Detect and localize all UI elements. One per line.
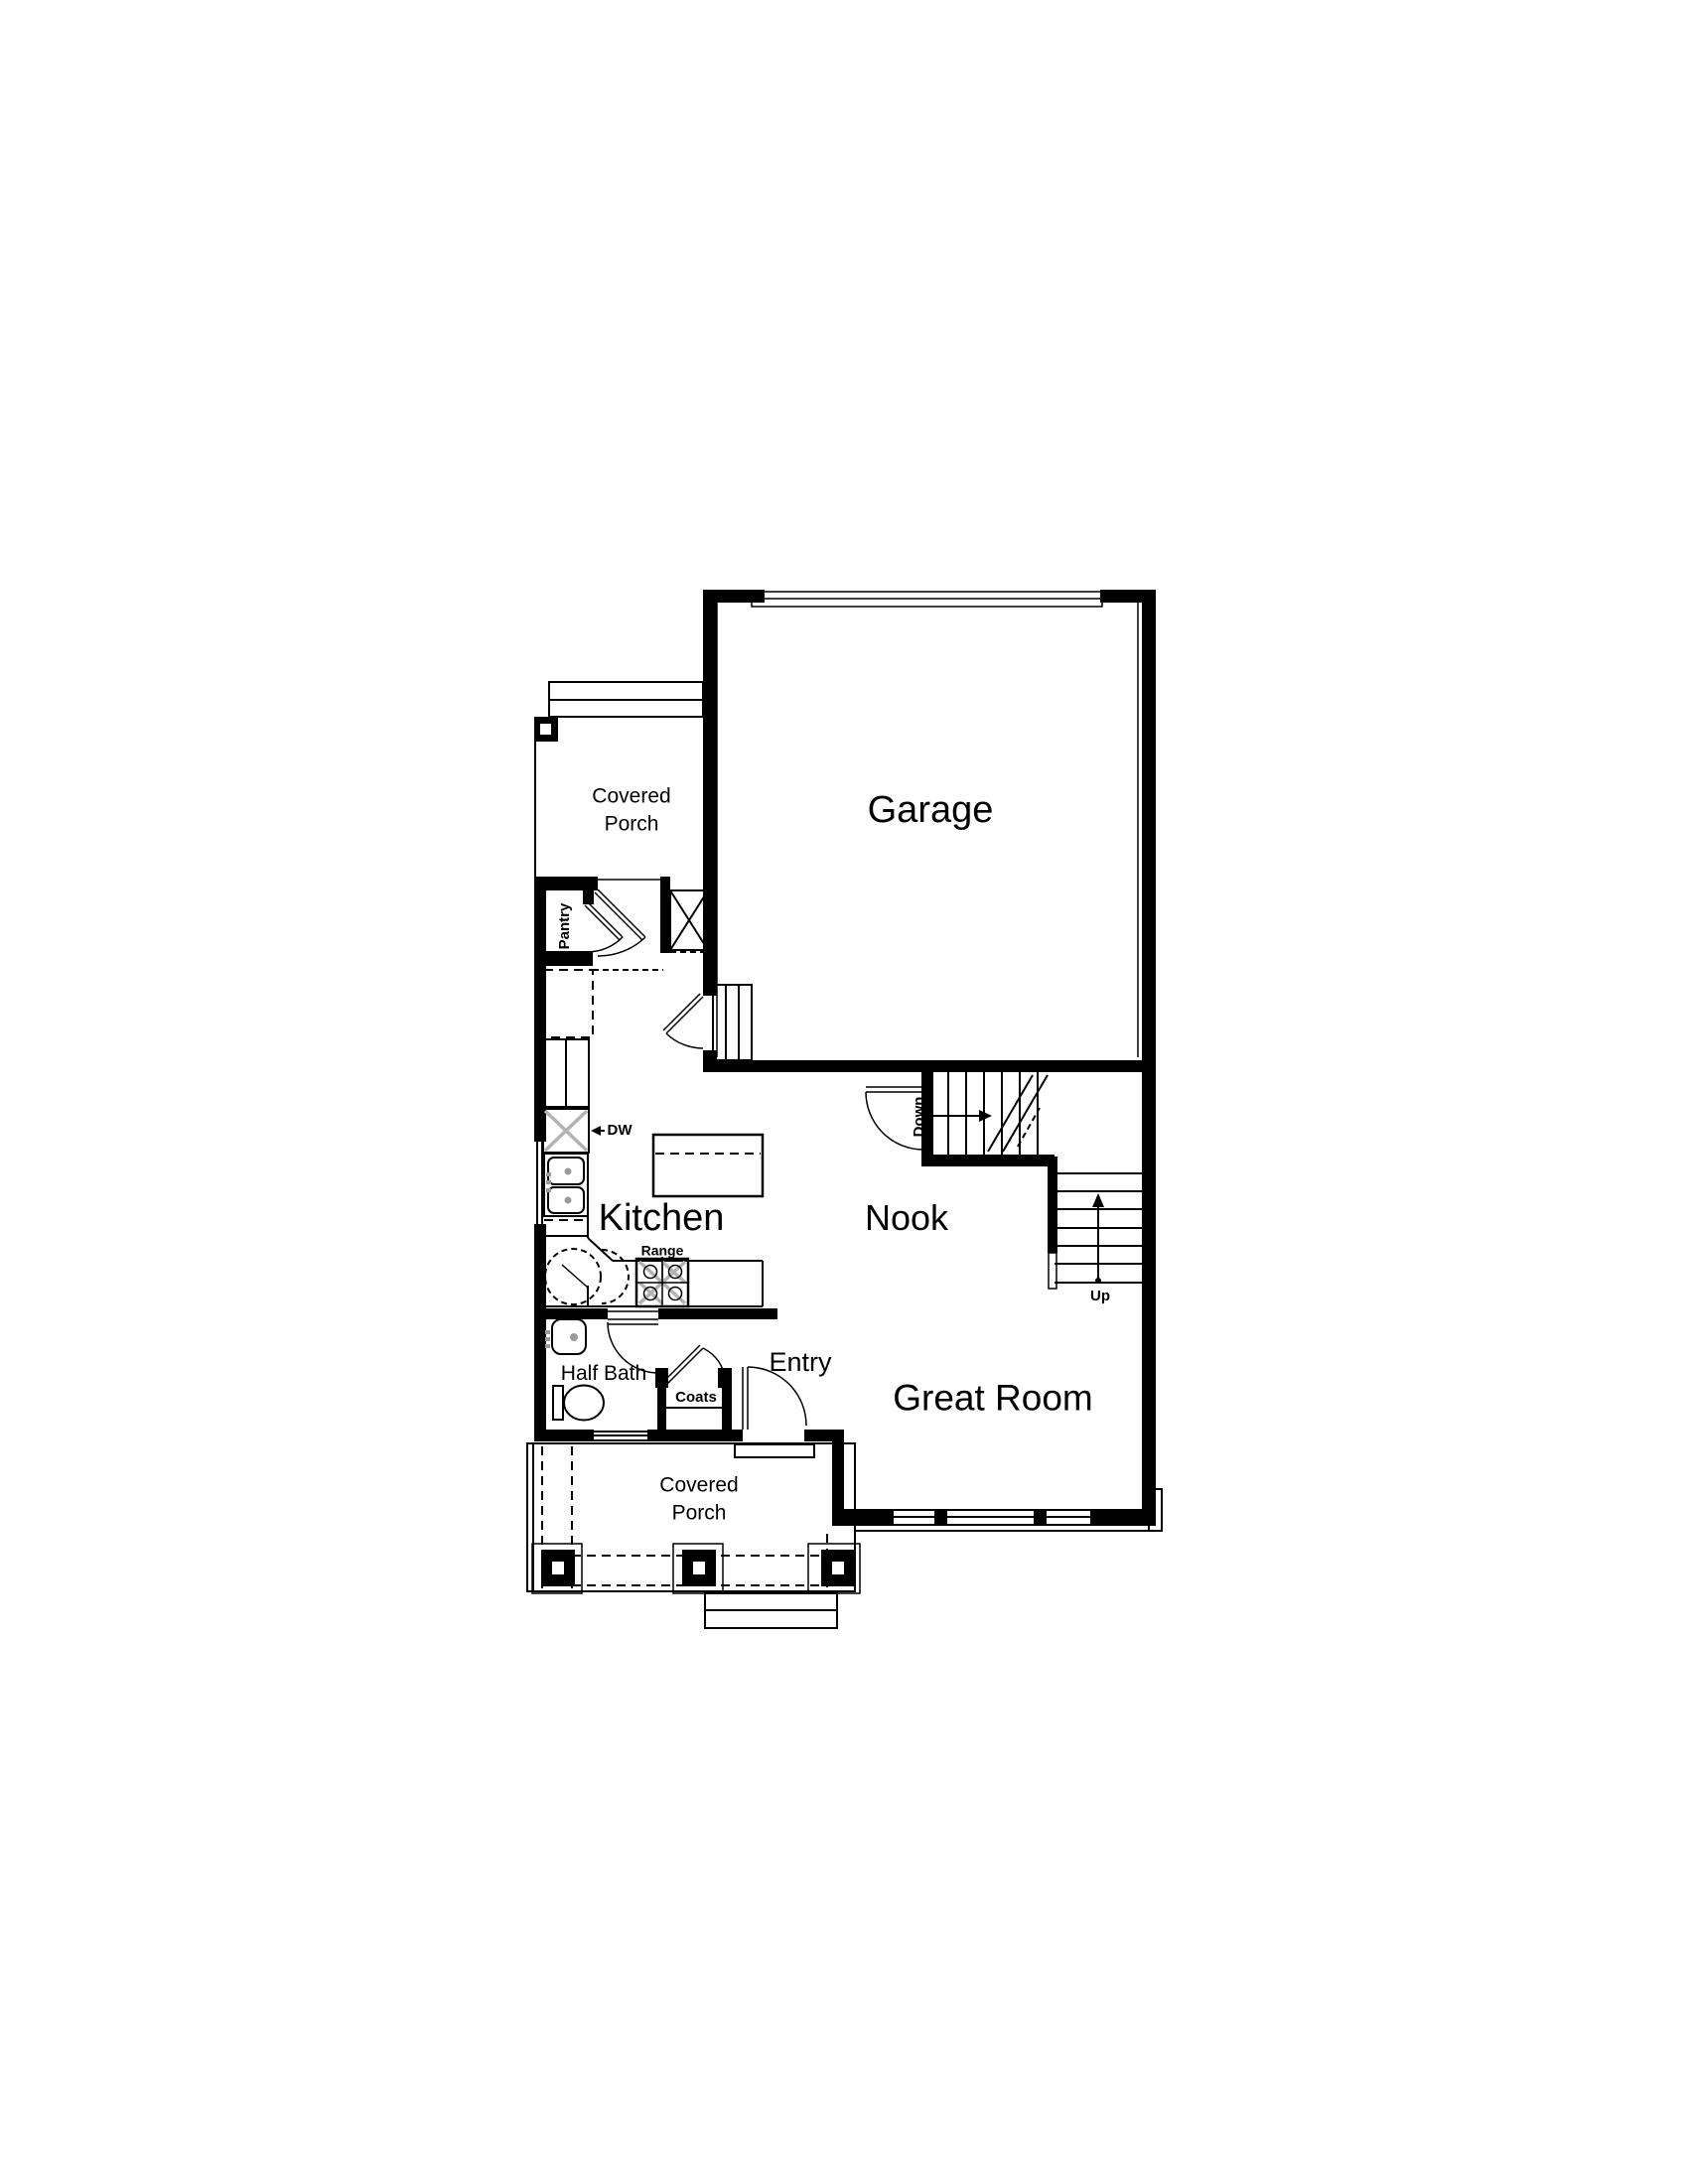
kitchen-window — [537, 1142, 542, 1224]
room-label-coats: Coats — [675, 1390, 717, 1407]
room-label-entry: Entry — [769, 1348, 831, 1378]
range-fixture — [636, 1257, 688, 1306]
covered-porch-top-line2: Porch — [592, 810, 670, 838]
toilet-fixture — [553, 1386, 604, 1421]
room-label-great-room: Great Room — [893, 1379, 1093, 1420]
top-porch-south-wall — [534, 877, 670, 890]
covered-porch-bottom-line2: Porch — [659, 1499, 738, 1527]
refrigerator-outline — [544, 970, 593, 1037]
covered-porch-top-line1: Covered — [592, 782, 670, 810]
top-porch-overhang — [549, 682, 703, 717]
floor-plan-page: Garage Covered Porch Pantry DW Kitchen R… — [0, 0, 1688, 2184]
top-porch-post — [534, 717, 558, 742]
room-label-garage: Garage — [868, 790, 994, 832]
annotation-dw: DW — [608, 1123, 633, 1140]
kitchen-island — [653, 1135, 763, 1196]
coats-closet-door — [664, 1345, 726, 1384]
room-label-half-bath: Half Bath — [561, 1360, 646, 1388]
mud-closet — [660, 888, 708, 953]
kitchen-cabinet — [544, 1039, 589, 1107]
garage-entry-steps — [713, 985, 752, 1060]
covered-porch-bottom-line1: Covered — [659, 1471, 738, 1499]
room-label-covered-porch-top: Covered Porch — [592, 782, 670, 837]
stairs-down — [921, 1072, 1055, 1166]
annotation-range: Range — [641, 1243, 684, 1258]
room-label-covered-porch-bottom: Covered Porch — [659, 1471, 738, 1526]
dishwasher-fixture — [543, 1109, 605, 1153]
great-room-window — [894, 1509, 1090, 1526]
kitchen-south-wall — [534, 1308, 777, 1319]
pantry-door — [585, 902, 623, 952]
garage-door-opening — [717, 592, 1138, 607]
entry-stoop — [735, 1444, 814, 1457]
floor-plan-drawing — [0, 0, 1688, 2184]
half-bath-window — [594, 1432, 647, 1440]
garage-entry-door — [663, 994, 703, 1048]
annotation-up: Up — [1090, 1289, 1110, 1305]
porch-steps — [705, 1593, 837, 1628]
great-room-walls — [804, 1430, 1156, 1526]
kitchen-sink-fixture — [544, 1154, 588, 1216]
bathroom-sink-fixture — [545, 1319, 586, 1354]
room-label-kitchen: Kitchen — [599, 1198, 725, 1240]
annotation-down: Down — [912, 1097, 928, 1138]
room-label-pantry: Pantry — [557, 903, 574, 950]
stairs-up — [1048, 1157, 1142, 1289]
room-label-nook: Nook — [865, 1198, 948, 1238]
